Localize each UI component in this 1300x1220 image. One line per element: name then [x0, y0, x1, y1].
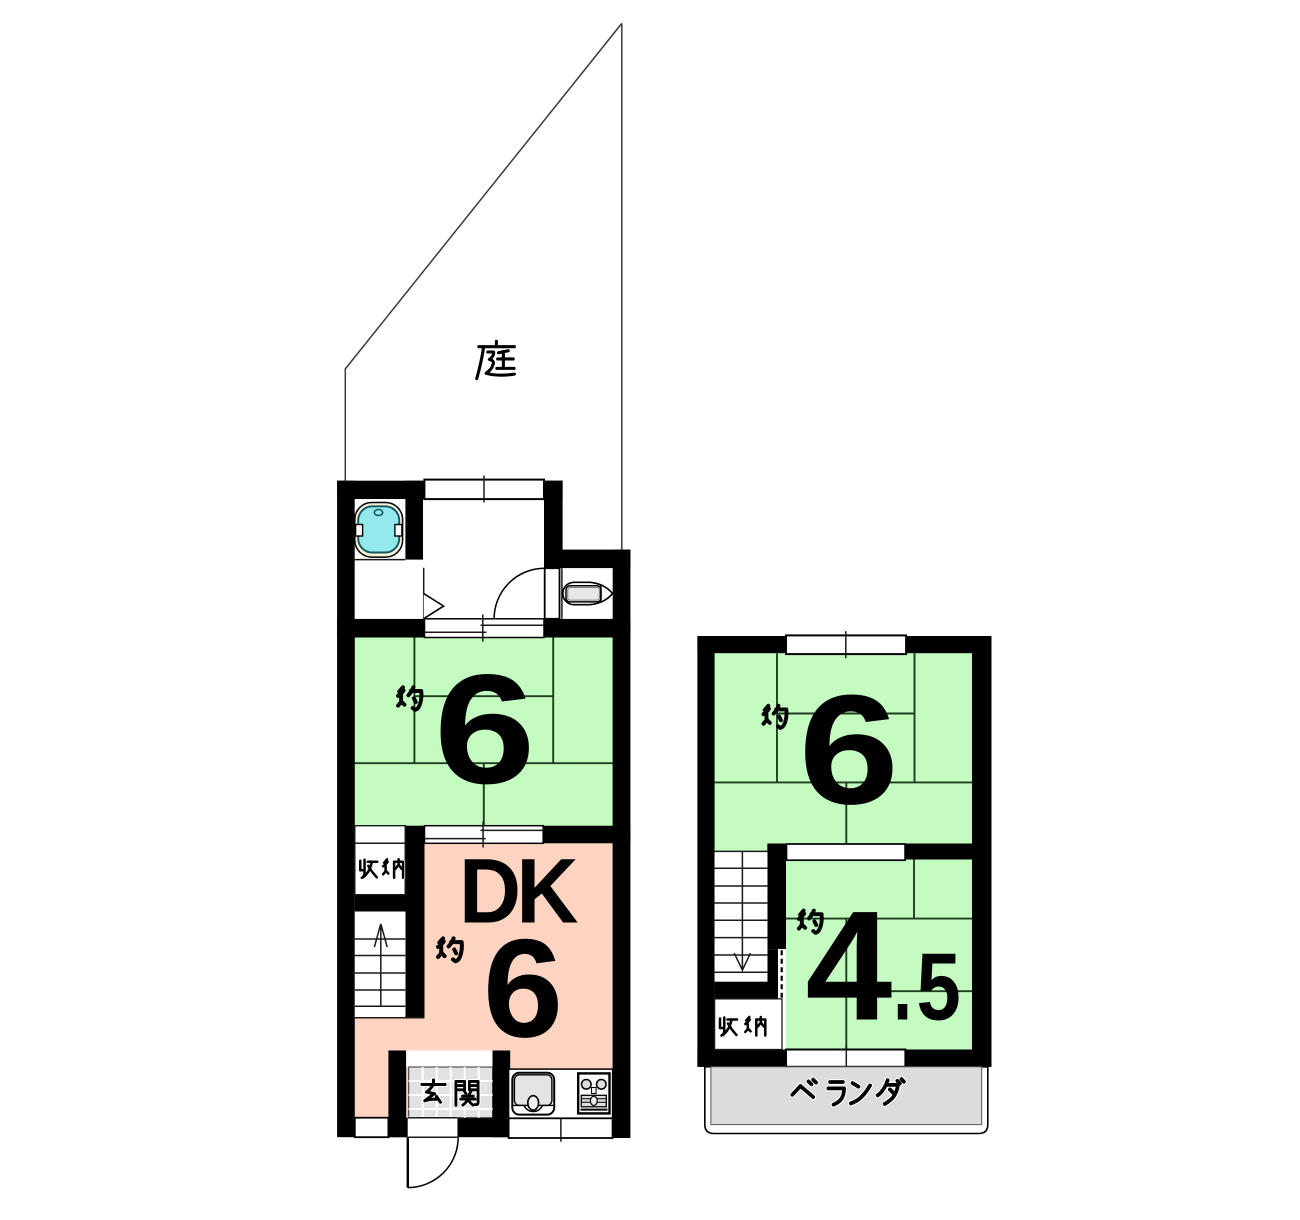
svg-text:5: 5	[916, 932, 960, 1040]
svg-text:6: 6	[799, 662, 899, 837]
svg-text:4: 4	[806, 880, 893, 1054]
svg-text:6: 6	[434, 641, 536, 815]
svg-text:6: 6	[483, 910, 563, 1067]
